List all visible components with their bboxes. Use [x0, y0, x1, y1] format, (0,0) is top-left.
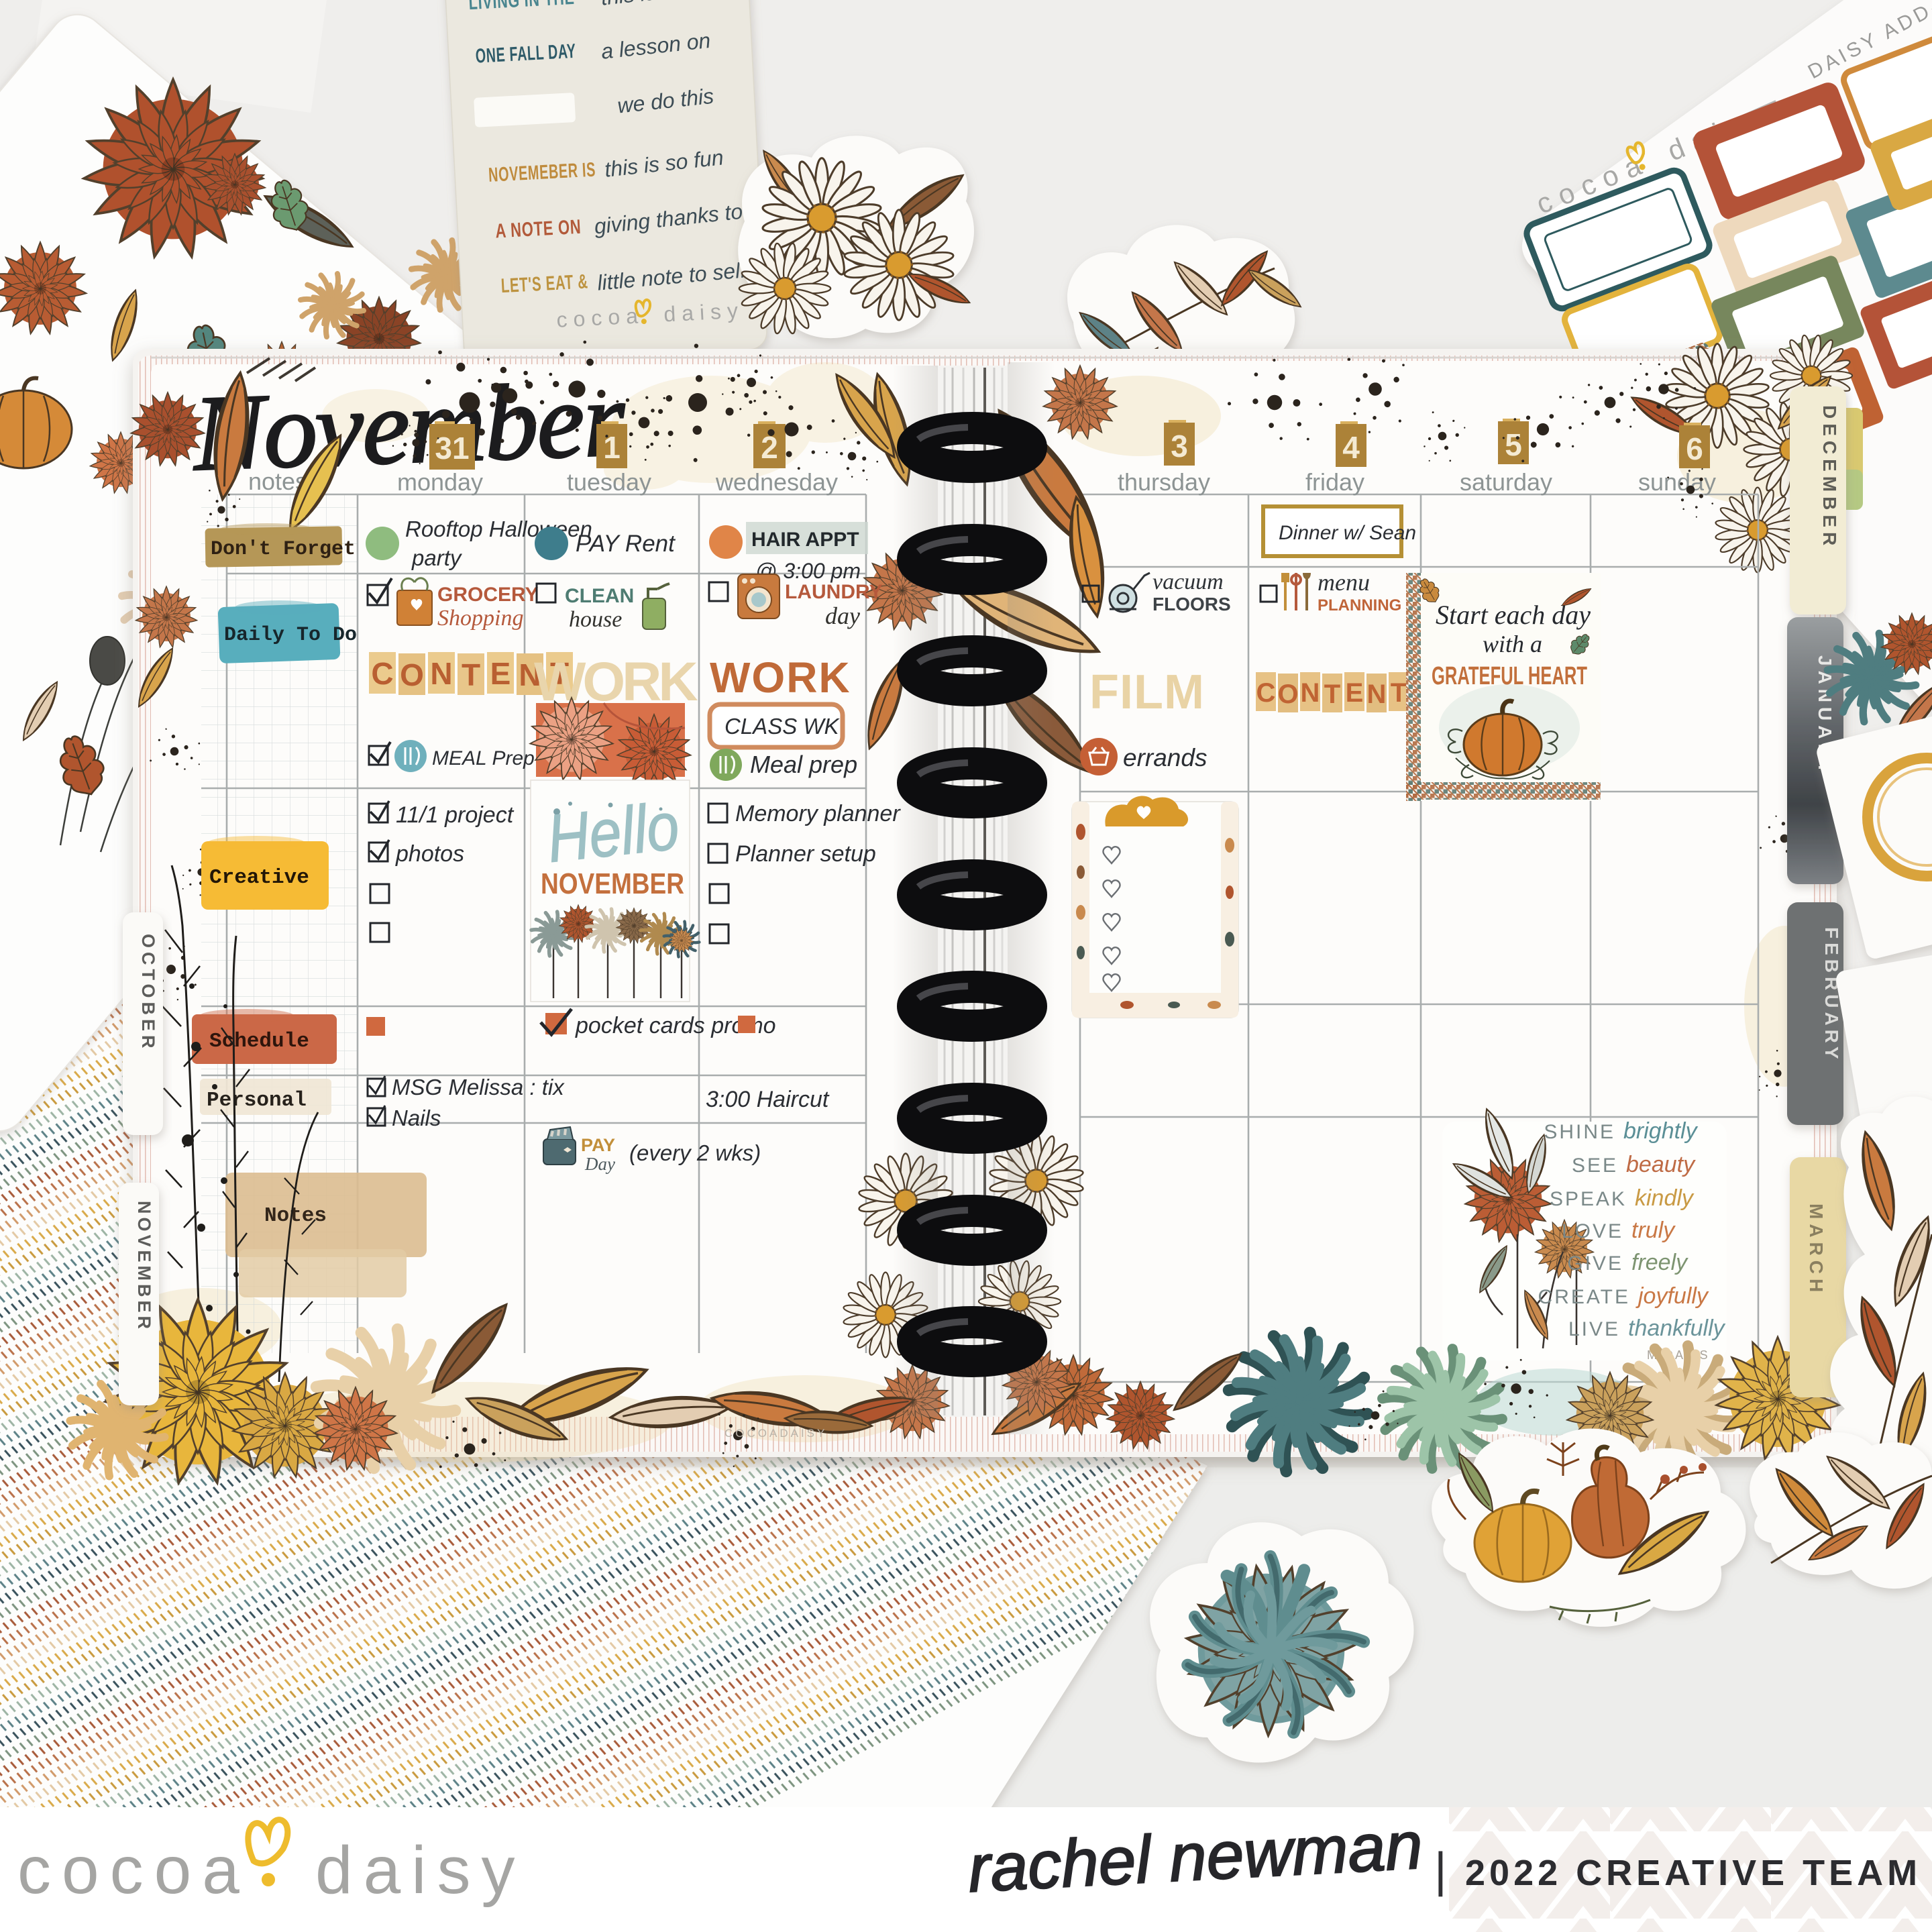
svg-text:Nails: Nails	[392, 1106, 441, 1130]
svg-text:kindly: kindly	[1635, 1185, 1695, 1211]
svg-text:CLEAN: CLEAN	[565, 585, 634, 607]
svg-text:FILM: FILM	[1089, 665, 1205, 719]
svg-text:Meal prep: Meal prep	[750, 751, 857, 778]
svg-text:LOVE: LOVE	[1562, 1220, 1623, 1242]
svg-text:photos: photos	[395, 841, 464, 867]
svg-text:MARCH: MARCH	[1806, 1203, 1827, 1297]
svg-text:GIVE: GIVE	[1567, 1252, 1623, 1275]
svg-text:Dinner w/ Sean: Dinner w/ Sean	[1279, 522, 1416, 544]
svg-text:Shopping: Shopping	[437, 606, 523, 631]
svg-text:sunday: sunday	[1638, 468, 1716, 496]
svg-text:day: day	[825, 602, 860, 629]
svg-text:N: N	[1367, 680, 1387, 709]
svg-text:E: E	[490, 656, 511, 691]
svg-text:Memory planner: Memory planner	[735, 801, 901, 826]
svg-text:HAIR APPT: HAIR APPT	[751, 529, 859, 551]
svg-text:house: house	[569, 607, 622, 632]
svg-text:Don't Forget: Don't Forget	[211, 538, 356, 561]
svg-text:5: 5	[1505, 427, 1522, 462]
svg-text:T: T	[1324, 680, 1340, 709]
svg-text:CREATE: CREATE	[1538, 1286, 1630, 1308]
svg-text:monday: monday	[397, 468, 483, 496]
svg-text:Creative: Creative	[209, 866, 309, 890]
svg-text:OCTOBER: OCTOBER	[138, 934, 158, 1053]
svg-text:(every 2 wks): (every 2 wks)	[629, 1140, 761, 1165]
svg-text:O: O	[400, 657, 424, 692]
svg-text:wednesday: wednesday	[715, 468, 838, 496]
svg-text:PAY: PAY	[581, 1135, 615, 1155]
svg-text:truly: truly	[1631, 1218, 1676, 1243]
svg-text:|: |	[1434, 1843, 1447, 1897]
svg-text:saturday: saturday	[1460, 468, 1552, 496]
svg-text:freely: freely	[1631, 1250, 1688, 1275]
svg-text:COCOADAISY: COCOADAISY	[724, 1427, 827, 1440]
svg-text:brightly: brightly	[1623, 1118, 1699, 1144]
svg-text:N: N	[430, 656, 452, 691]
svg-text:4: 4	[1342, 430, 1360, 465]
svg-text:Daily To Do: Daily To Do	[224, 624, 357, 647]
svg-text:Personal: Personal	[207, 1089, 307, 1112]
svg-text:31: 31	[435, 431, 469, 466]
svg-text:FLOORS: FLOORS	[1152, 594, 1231, 614]
svg-text:E: E	[1346, 678, 1364, 708]
svg-text:vacuum: vacuum	[1152, 570, 1224, 594]
svg-text:GRATEFUL HEART: GRATEFUL HEART	[1432, 662, 1587, 690]
svg-text:PAY Rent: PAY Rent	[576, 531, 676, 557]
svg-text:Schedule: Schedule	[209, 1030, 309, 1053]
svg-text:2022 CREATIVE TEAM: 2022 CREATIVE TEAM	[1465, 1853, 1921, 1893]
svg-text:PLANNING: PLANNING	[1318, 596, 1401, 614]
svg-text:GROCERY: GROCERY	[437, 584, 539, 606]
svg-text:party: party	[411, 545, 463, 570]
svg-text:cocoa: cocoa	[17, 1833, 250, 1908]
svg-text:O: O	[1277, 680, 1298, 709]
svg-text:daisy: daisy	[663, 298, 744, 326]
svg-text:CLASS WK: CLASS WK	[724, 714, 841, 739]
svg-text:3:00 Haircut: 3:00 Haircut	[706, 1087, 830, 1112]
svg-text:menu: menu	[1318, 569, 1370, 596]
svg-text:cocoa: cocoa	[556, 303, 645, 332]
svg-text:T: T	[462, 657, 480, 692]
svg-text:Notes: Notes	[264, 1204, 327, 1228]
svg-text:MEAL Prep: MEAL Prep	[432, 747, 535, 769]
svg-text:LIVE: LIVE	[1568, 1318, 1620, 1340]
svg-text:Planner setup: Planner setup	[735, 841, 876, 867]
svg-text:thursday: thursday	[1118, 468, 1210, 496]
svg-text:6: 6	[1686, 431, 1703, 466]
svg-text:joyfully: joyfully	[1635, 1283, 1709, 1309]
svg-text:SEE: SEE	[1572, 1155, 1618, 1177]
svg-text:LAUNDRY: LAUNDRY	[785, 581, 883, 603]
svg-text:3: 3	[1171, 429, 1188, 464]
svg-text:DECEMBER: DECEMBER	[1819, 405, 1840, 550]
svg-text:Hello: Hello	[544, 788, 683, 877]
svg-text:T: T	[1391, 678, 1407, 708]
svg-text:SPEAK: SPEAK	[1550, 1188, 1627, 1210]
svg-text:friday: friday	[1305, 468, 1364, 496]
svg-text:Day: Day	[584, 1154, 615, 1174]
svg-text:C: C	[371, 656, 393, 691]
svg-text:tuesday: tuesday	[567, 468, 651, 496]
svg-text:errands: errands	[1123, 744, 1207, 771]
svg-text:with a: with a	[1483, 631, 1542, 657]
svg-text:LET'S EAT &: LET'S EAT &	[500, 270, 589, 297]
svg-text:thankfully: thankfully	[1628, 1316, 1726, 1341]
svg-text:N: N	[1301, 678, 1320, 708]
svg-text:MSG Melissa : tix: MSG Melissa : tix	[392, 1075, 565, 1099]
svg-text:daisy: daisy	[315, 1833, 525, 1908]
svg-text:WORK: WORK	[710, 653, 851, 702]
svg-text:11/1 project: 11/1 project	[396, 802, 515, 828]
svg-text:NOVEMBER: NOVEMBER	[134, 1201, 154, 1332]
svg-text:A NOTE ON: A NOTE ON	[495, 216, 582, 243]
svg-text:beauty: beauty	[1626, 1152, 1696, 1177]
svg-text:C: C	[1256, 678, 1276, 708]
svg-text:SHINE: SHINE	[1544, 1121, 1615, 1143]
svg-text:NOVEMBER: NOVEMBER	[541, 867, 684, 900]
